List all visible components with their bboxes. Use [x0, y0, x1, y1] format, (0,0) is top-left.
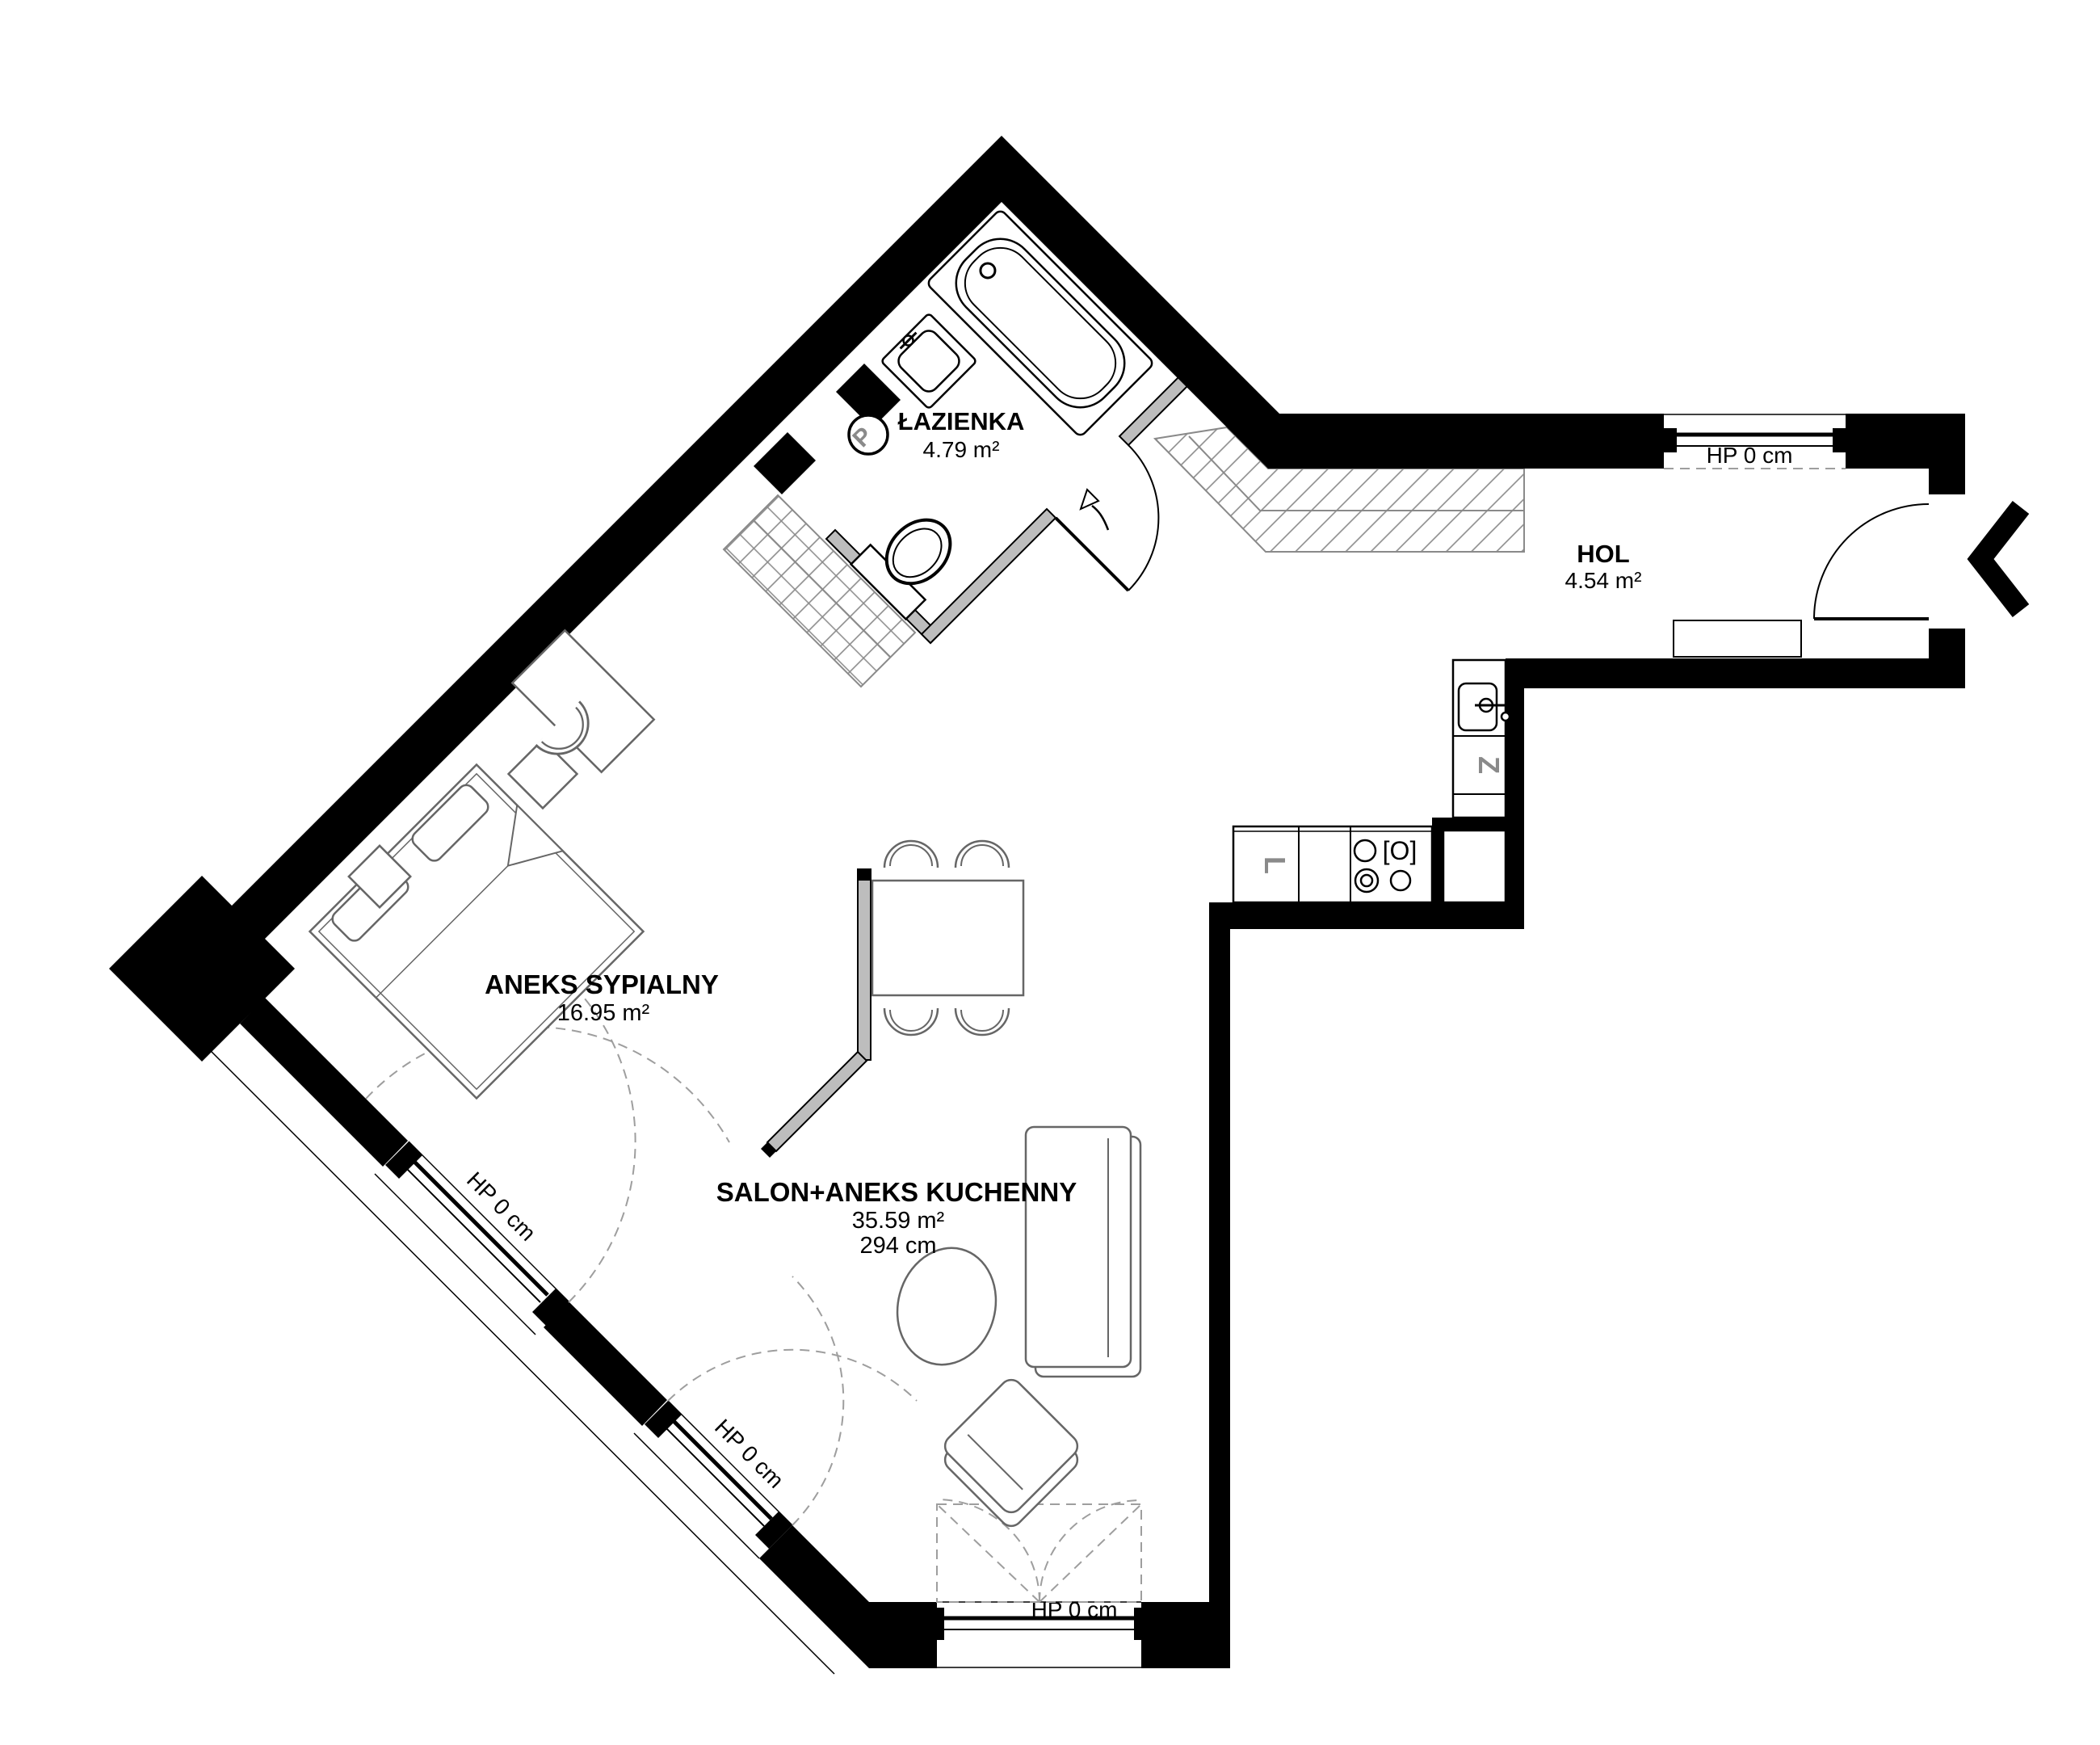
- floor-plan: HP 0 cm HP 0 cm HP 0 cm HP 0 cm: [0, 0, 2100, 1745]
- room-label-living: SALON+ANEKS KUCHENNY 35.59 m² 294 cm: [716, 1177, 1077, 1259]
- svg-text:35.59 m²: 35.59 m²: [852, 1208, 945, 1234]
- svg-text:16.95 m²: 16.95 m²: [557, 1000, 650, 1026]
- room-label-bathroom: ŁAZIENKA 4.79 m²: [898, 407, 1025, 462]
- svg-text:4.54 m²: 4.54 m²: [1565, 568, 1642, 593]
- direction-arrow-icon: [1081, 490, 1108, 530]
- kitchen: Z L [O]: [1233, 660, 1510, 902]
- svg-text:ANEKS SYPIALNY: ANEKS SYPIALNY: [485, 969, 719, 999]
- floor-plan-svg: HP 0 cm HP 0 cm HP 0 cm HP 0 cm: [0, 0, 2100, 1745]
- facade-outer-line: [186, 1026, 834, 1674]
- wall-hall-bottom: [1524, 658, 1965, 688]
- window-bedroom: HP 0 cm: [375, 1142, 569, 1335]
- svg-text:HOL: HOL: [1577, 540, 1629, 568]
- wall-kitchen-bottom: [1209, 902, 1524, 929]
- window-sill-label: HP 0 cm: [1031, 1597, 1118, 1622]
- dishwasher-label: Z: [1472, 756, 1506, 774]
- window-living-diagonal: HP 0 cm: [634, 1401, 792, 1558]
- fridge-label: L: [1258, 856, 1291, 874]
- wall-washer-stub-sw: [754, 432, 816, 494]
- sofa: [1026, 1127, 1140, 1377]
- wall-entry-below-door: [1929, 629, 1965, 658]
- wall-kitchen-vertical: [1506, 658, 1524, 929]
- window-hall: HP 0 cm: [1664, 414, 1846, 469]
- dining-table: [872, 881, 1023, 995]
- oven-label: [O]: [1383, 836, 1417, 865]
- kitchen-cabinet-corner: [1443, 830, 1506, 902]
- svg-text:SALON+ANEKS KUCHENNY: SALON+ANEKS KUCHENNY: [716, 1177, 1077, 1207]
- dining-chair: [884, 1008, 938, 1035]
- living-partition-wall: [761, 869, 871, 1158]
- wall-ll-corner: [759, 1525, 937, 1668]
- window-sill-label: HP 0 cm: [1707, 443, 1793, 468]
- svg-text:4.79 m²: 4.79 m²: [923, 437, 1000, 462]
- svg-text:294 cm: 294 cm: [859, 1233, 936, 1259]
- hall-cabinet: [1674, 620, 1801, 657]
- dining-chair: [955, 1008, 1009, 1035]
- entry-arrow-icon: [1980, 507, 2021, 611]
- wall-kitchen-stub-v: [1432, 818, 1443, 902]
- wall-living-right: [1209, 929, 1230, 1668]
- dining-chair: [884, 841, 938, 868]
- entry-door: [1814, 504, 2021, 619]
- armchair: [934, 1375, 1089, 1530]
- window-sill-label: HP 0 cm: [710, 1415, 788, 1493]
- bathtub: [926, 209, 1155, 438]
- wall-ll-seg2: [544, 1301, 667, 1426]
- window-living-bottom: HP 0 cm: [931, 1597, 1147, 1667]
- wall-hall-top-left: [1279, 414, 1664, 469]
- washing-machine: P: [848, 415, 888, 454]
- dining-chair: [955, 841, 1009, 868]
- wall-entry-above-door: [1929, 469, 1965, 494]
- room-label-hall: HOL 4.54 m²: [1565, 540, 1642, 593]
- svg-text:ŁAZIENKA: ŁAZIENKA: [898, 407, 1025, 435]
- bathroom-door: [1056, 445, 1158, 591]
- wall-hall-top-right: [1846, 414, 1965, 469]
